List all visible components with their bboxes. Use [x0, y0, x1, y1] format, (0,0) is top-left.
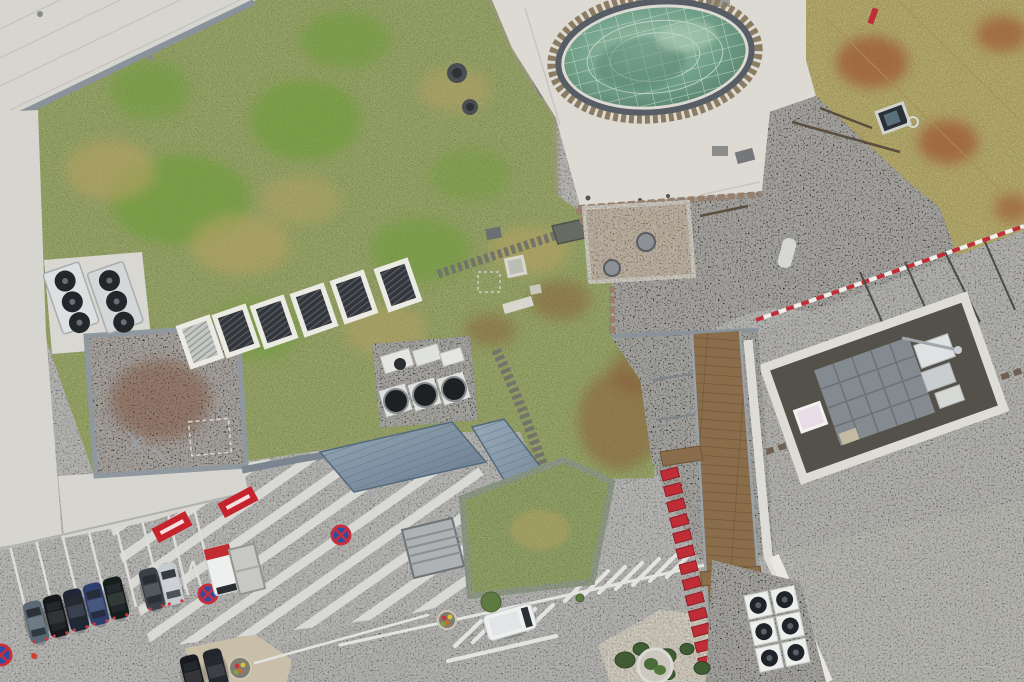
notch-dry-patch	[510, 510, 570, 550]
dome-vent-cap	[452, 68, 462, 78]
flowers	[442, 616, 447, 621]
flowers	[235, 664, 240, 669]
flowers	[234, 670, 239, 675]
planter-ring	[438, 611, 456, 629]
small-fan	[394, 358, 406, 370]
lamp-head	[954, 346, 962, 354]
entrance-stairs	[402, 518, 464, 578]
dome-vent	[604, 260, 620, 276]
white-roof-left-strip	[0, 110, 46, 338]
planter	[438, 611, 456, 629]
planter	[638, 649, 672, 682]
planter	[481, 592, 501, 612]
traffic-cone-dot	[31, 653, 37, 659]
planter-ring	[229, 657, 251, 679]
flowers	[445, 621, 450, 626]
roof-hatch-box	[506, 256, 526, 276]
dome-vent-cap	[466, 103, 474, 111]
no-stopping-sign	[332, 526, 350, 544]
bush	[694, 662, 710, 675]
flowers	[238, 669, 243, 674]
roof-vent-dot	[37, 11, 43, 17]
plant	[481, 592, 501, 612]
no-stopping-sign	[0, 645, 11, 665]
aerial-photo-canvas	[0, 0, 1024, 682]
plant	[576, 594, 584, 602]
aerial-photo	[0, 0, 1024, 682]
plant	[654, 665, 666, 675]
flowers	[241, 663, 246, 668]
gravel-patch	[110, 360, 210, 440]
bush	[615, 652, 635, 668]
dome-vent	[637, 233, 655, 251]
flowers	[441, 622, 446, 627]
flowers	[448, 615, 453, 620]
planter	[576, 594, 584, 602]
bush	[680, 643, 694, 654]
roof-vent-dot	[147, 55, 153, 61]
planter	[229, 657, 251, 679]
